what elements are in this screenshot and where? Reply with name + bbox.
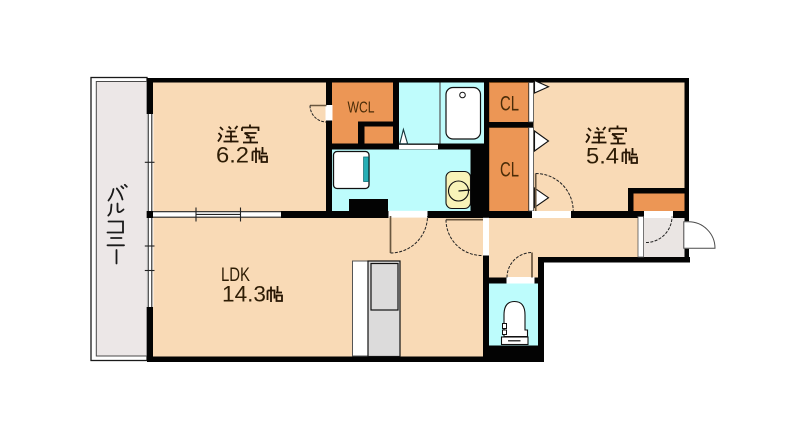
svg-text:6.2: 6.2: [216, 143, 249, 168]
svg-text:CL: CL: [500, 93, 519, 116]
svg-text:5.4: 5.4: [586, 144, 619, 169]
svg-text:WCL: WCL: [348, 100, 375, 117]
svg-text:14.3: 14.3: [222, 282, 266, 307]
svg-text:CL: CL: [500, 159, 519, 182]
